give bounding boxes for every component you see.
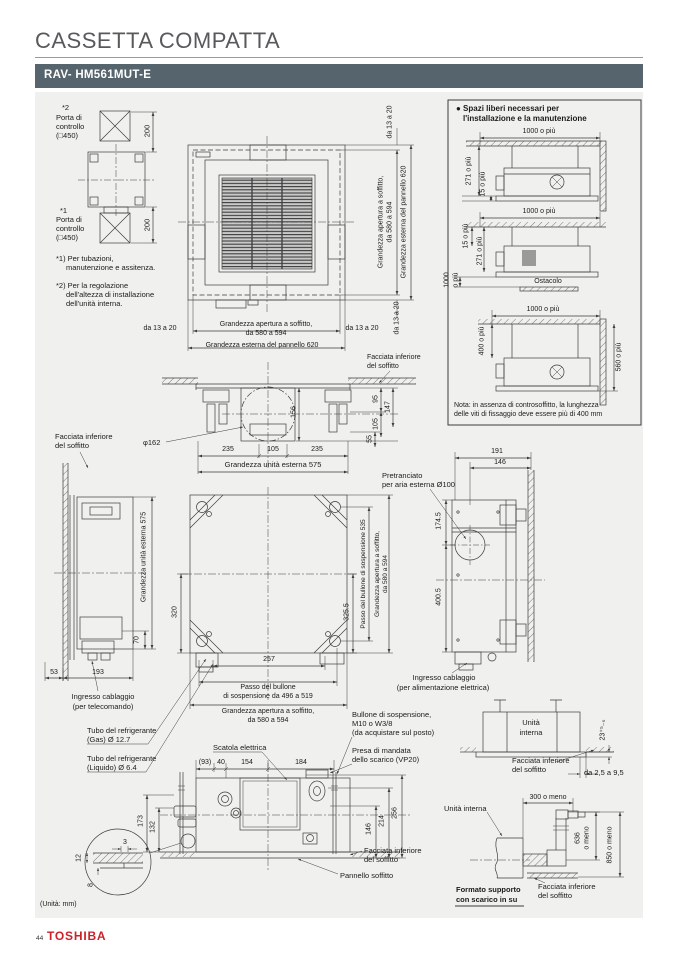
- formato-l1: Formato supporto: [456, 885, 521, 894]
- dim-320: 320: [172, 606, 181, 618]
- dim-apertura-plan-b-l1: Grandezza apertura a soffitto,: [222, 708, 314, 717]
- dim-147: 147: [385, 401, 394, 413]
- dim-400-5: 400.5: [436, 588, 445, 606]
- dim-gap-left: da 13 a 20: [143, 325, 176, 334]
- pannello-soffitto-label: Pannello soffitto: [340, 871, 393, 880]
- dim-apertura-rot: Grandezza apertura a soffitto, da 580 a …: [377, 176, 395, 268]
- dim-93: (93): [199, 759, 211, 768]
- ingresso-tel-l1: Ingresso cablaggio: [72, 692, 135, 701]
- spazi-nota-l1: Nota: in assenza di controsoffitto, la l…: [454, 402, 599, 411]
- porta2-line3: (□450): [56, 131, 78, 140]
- tubo-liq-l1: Tubo del refrigerante: [87, 754, 156, 763]
- note2-line2: dell'altezza di installazione: [66, 290, 154, 299]
- dim-apertura-plan-b-l2: da 580 a 594: [248, 717, 289, 726]
- dim-146-bottom: 146: [366, 823, 375, 835]
- dim-173: 173: [138, 815, 147, 827]
- spazi-nota-l2: delle viti di fissaggio deve essere più …: [454, 411, 602, 420]
- dim-range-25-95: da 2,5 a 9,5: [584, 768, 624, 777]
- dim-apertura-rot-l2: da 580 a 594: [386, 176, 395, 268]
- dim-det-8: 8: [88, 883, 97, 887]
- note2-line1: *2) Per la regolazione: [56, 281, 128, 290]
- spazi-obstacle: Ostacolo: [534, 278, 562, 287]
- dim-235-right: 235: [311, 446, 323, 455]
- unita-interna-a-l2: interna: [520, 728, 543, 737]
- bullone-l1: Bullone di sospensione,: [352, 710, 431, 719]
- spazi-d3-side: 560 o più: [616, 343, 625, 372]
- spazi-d3-top: 1000 o più: [527, 306, 560, 315]
- dim-apertura-plan-rot: Grandezza apertura a soffitto, da 580 a …: [374, 531, 390, 617]
- dim-apertura-b-l2: da 580 a 594: [246, 330, 287, 339]
- diagram-linework: [0, 0, 678, 959]
- dim-apertura-plan-l1: Grandezza apertura a soffitto,: [374, 531, 382, 617]
- dim-636-l1: 636: [574, 826, 583, 849]
- dim-tol-23: 23⁺⁵₋₀: [600, 720, 609, 741]
- dim-passo-b-l1: Passo del bullone: [240, 684, 295, 693]
- page-number: 44: [36, 935, 43, 942]
- dim-pannello-b: Grandezza esterna del pannello 620: [206, 342, 319, 351]
- dim-95: 95: [373, 395, 382, 403]
- facciata-a-l2: del soffitto: [512, 765, 546, 774]
- facciata-left-l2: del soffitto: [55, 441, 89, 450]
- dim-193: 193: [92, 669, 104, 678]
- spazi-d1-h: 271 o più: [466, 157, 475, 186]
- spazi-d2-top: 1000 o più: [523, 208, 556, 217]
- spazi-d3-rod: 400 o più: [479, 327, 488, 356]
- dim-passo-b-l2: di sospensione da 496 a 519: [223, 693, 313, 702]
- dim-det-12: 12: [76, 854, 85, 862]
- spazi-d1-gap: 15 o più: [480, 172, 489, 197]
- manual-page: CASSETTA COMPATTA RAV- HM561MUT-E: [0, 0, 678, 959]
- porta2-line2: controllo: [56, 122, 84, 131]
- dim-184: 184: [295, 759, 307, 768]
- spazi-d2-clear: 1000 o più: [443, 272, 461, 288]
- dim-200-bottom: 200: [142, 219, 151, 232]
- facciata-b-l2: del soffitto: [538, 891, 572, 900]
- dim-235-left: 235: [222, 446, 234, 455]
- spazi-title-l1: ● Spazi liberi necessari per: [456, 104, 559, 114]
- dim-pannello-rot: Grandezza esterna del pannello 620: [401, 166, 410, 279]
- facciata-bottom-l2: del soffitto: [364, 855, 398, 864]
- dim-105: 105: [267, 446, 279, 455]
- unita-interna-a-l1: Unità: [522, 718, 540, 727]
- dim-53: 53: [50, 669, 58, 678]
- dim-dia162: φ162: [143, 438, 160, 447]
- pretranciato-l2: per aria esterna Ø100: [382, 480, 455, 489]
- facciata-b-l1: Facciata inferiore: [538, 882, 596, 891]
- dim-gap-right: da 13 a 20: [345, 325, 378, 334]
- dim-passo-535: Passo del bullone di sospensione 535: [360, 519, 368, 628]
- ingresso-tel-l2: (per telecomando): [73, 702, 134, 711]
- pretranciato-l1: Pretranciato: [382, 471, 422, 480]
- dim-154: 154: [241, 759, 253, 768]
- dim-40: 40: [217, 759, 225, 768]
- spazi-d2-clear-l1: 1000: [443, 272, 452, 288]
- spazi-title-l2: l'installazione e la manutenzione: [463, 114, 587, 124]
- dim-200-top: 200: [142, 125, 151, 138]
- dim-156: 156: [291, 406, 300, 418]
- facciata-top-l2: del soffitto: [367, 363, 399, 372]
- ingresso-alim-l2: (per alimentazione elettrica): [397, 683, 490, 692]
- dim-256: 256: [392, 807, 401, 819]
- dim-300-o-meno: 300 o meno: [530, 794, 567, 803]
- dim-unita-575-vert: Grandezza unità esterna 575: [141, 512, 150, 602]
- dim-214: 214: [379, 815, 388, 827]
- spazi-d2-gap: 15 o più: [463, 224, 472, 249]
- toshiba-logo: TOSHIBA: [47, 929, 106, 943]
- dim-636-o-meno: 636 o meno: [574, 826, 592, 849]
- spazi-d2-h: 271 o più: [477, 237, 486, 266]
- spazi-d1-top: 1000 o più: [523, 128, 556, 137]
- dim-70: 70: [134, 636, 143, 644]
- note2-line3: dell'unità interna.: [66, 299, 122, 308]
- dim-174-5: 174.5: [436, 512, 445, 530]
- dim-apertura-plan-l2: da 580 a 594: [382, 531, 390, 617]
- facciata-left-l1: Facciata inferiore: [55, 432, 113, 441]
- facciata-bottom-l1: Facciata inferiore: [364, 846, 422, 855]
- scatola-label: Scatola elettrica: [213, 743, 266, 752]
- dim-105-right: 105: [373, 418, 382, 430]
- bullone-l2: M10 o W3/8: [352, 719, 392, 728]
- units-note: (Unità: mm): [40, 901, 77, 910]
- dim-636-l2: o meno: [583, 826, 592, 849]
- bullone-l3: (da acquistare sul posto): [352, 728, 434, 737]
- dim-132: 132: [150, 821, 159, 833]
- dim-det-3: 3: [123, 839, 127, 848]
- porta2-line1: Porta di: [56, 113, 82, 122]
- dim-191: 191: [491, 448, 503, 457]
- dim-apertura-b-l1: Grandezza apertura a soffitto,: [220, 321, 312, 330]
- dim-apertura-rot-l1: Grandezza apertura a soffitto,: [377, 176, 386, 268]
- ingresso-alim-l1: Ingresso cablaggio: [413, 673, 476, 682]
- dim-850-o-meno: 850 o meno: [607, 827, 616, 864]
- porta1-line3: (□450): [56, 233, 78, 242]
- facciata-top-l1: Facciata inferiore: [367, 354, 421, 363]
- ref-2: *2: [62, 103, 69, 112]
- ref-1: *1: [60, 206, 67, 215]
- formato-l2: con scarico in su: [456, 895, 517, 904]
- dim-gap-top: da 13 a 20: [387, 105, 396, 138]
- tubo-gas-l2: (Gas) Ø 12.7: [87, 735, 130, 744]
- dim-55: 55: [367, 435, 376, 443]
- note1-line2: manutenzione e assitenza.: [66, 263, 155, 272]
- dim-325-5: 325.5: [344, 603, 353, 621]
- dim-gap-bottom-rot: da 13 a 20: [394, 301, 403, 334]
- note1-line1: *1) Per tubazioni,: [56, 254, 114, 263]
- spazi-d2-clear-l2: o più: [452, 272, 461, 288]
- unita-interna-b: Unità interna: [444, 804, 487, 813]
- dim-unita-575: Grandezza unità esterna 575: [225, 460, 322, 469]
- tubo-gas-l1: Tubo del refrigerante: [87, 726, 156, 735]
- facciata-a-l1: Facciata inferiore: [512, 756, 570, 765]
- dim-257: 257: [263, 656, 275, 665]
- dim-146-top: 146: [494, 459, 506, 468]
- presa-l2: dello scarico (VP20): [352, 755, 419, 764]
- porta1-line2: controllo: [56, 224, 84, 233]
- tubo-liq-l2: (Liquido) Ø 6.4: [87, 763, 137, 772]
- presa-l1: Presa di mandata: [352, 746, 411, 755]
- porta1-line1: Porta di: [56, 215, 82, 224]
